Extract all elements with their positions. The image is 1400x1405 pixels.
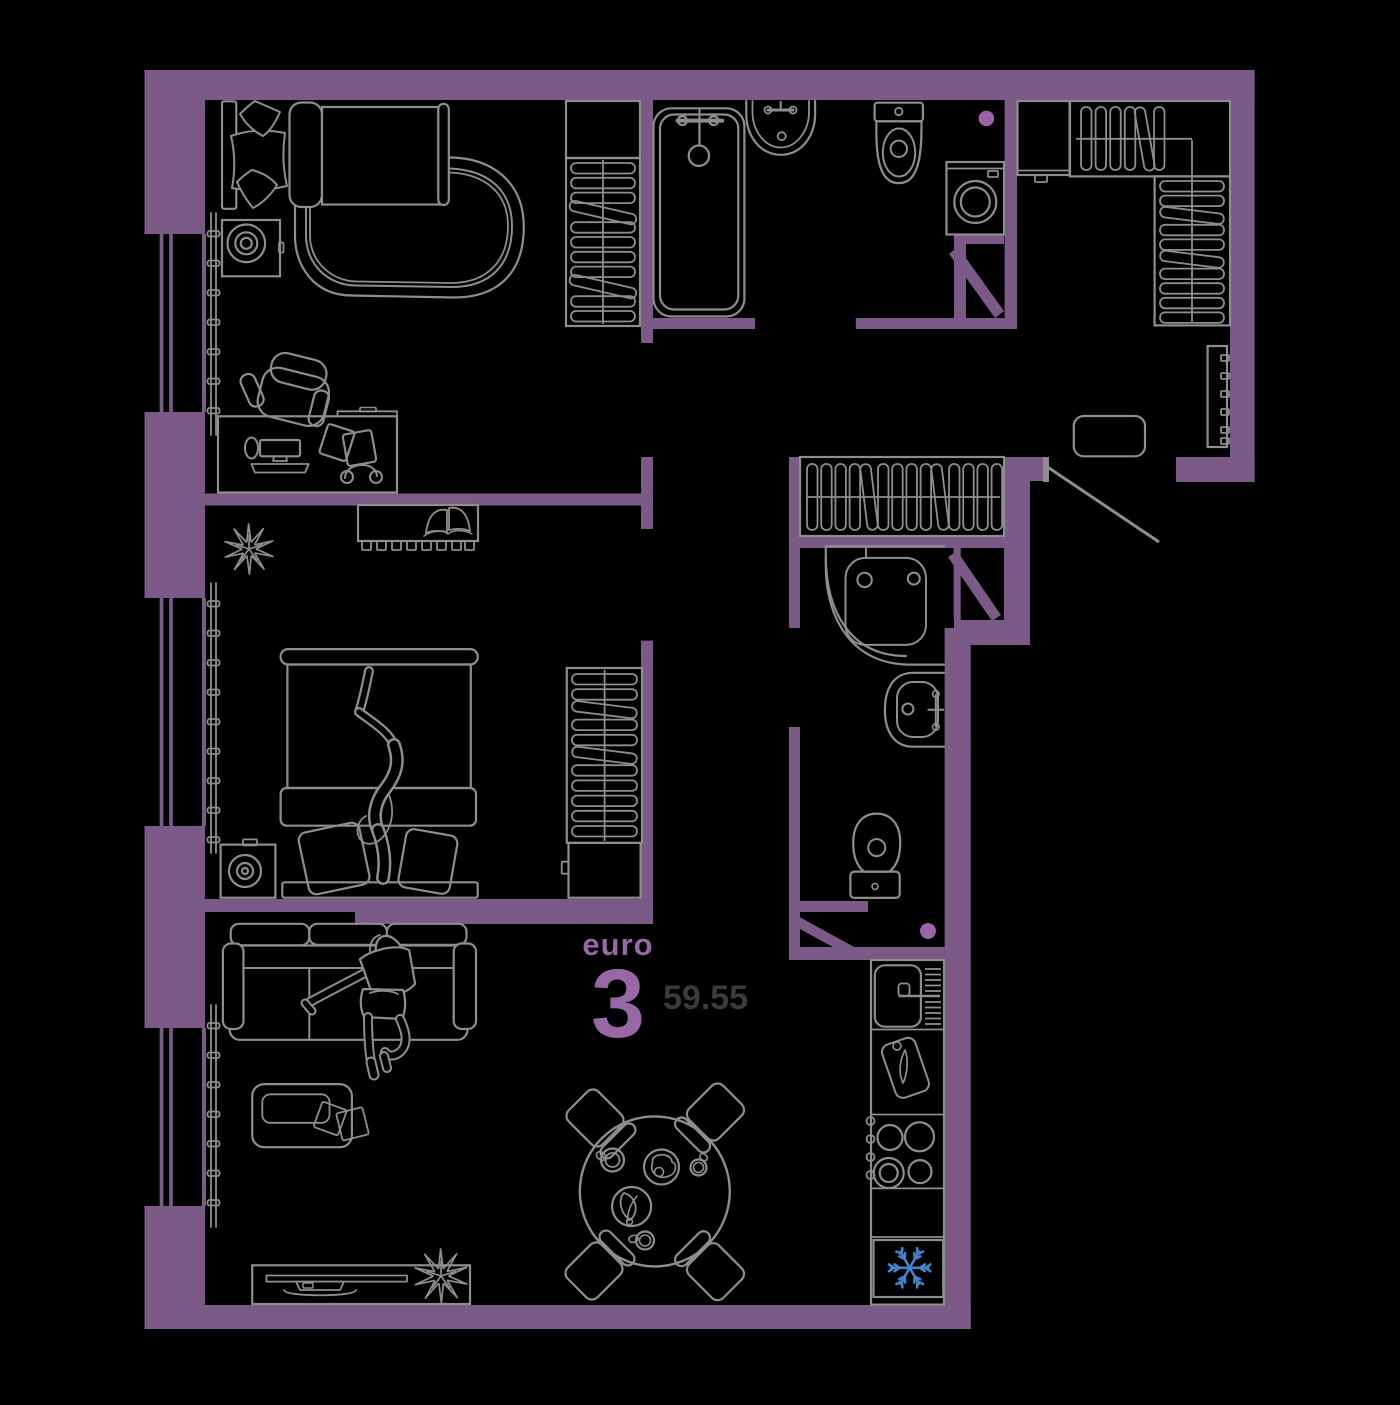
svg-text:3: 3 (591, 949, 645, 1058)
svg-text:59.55: 59.55 (663, 979, 748, 1017)
